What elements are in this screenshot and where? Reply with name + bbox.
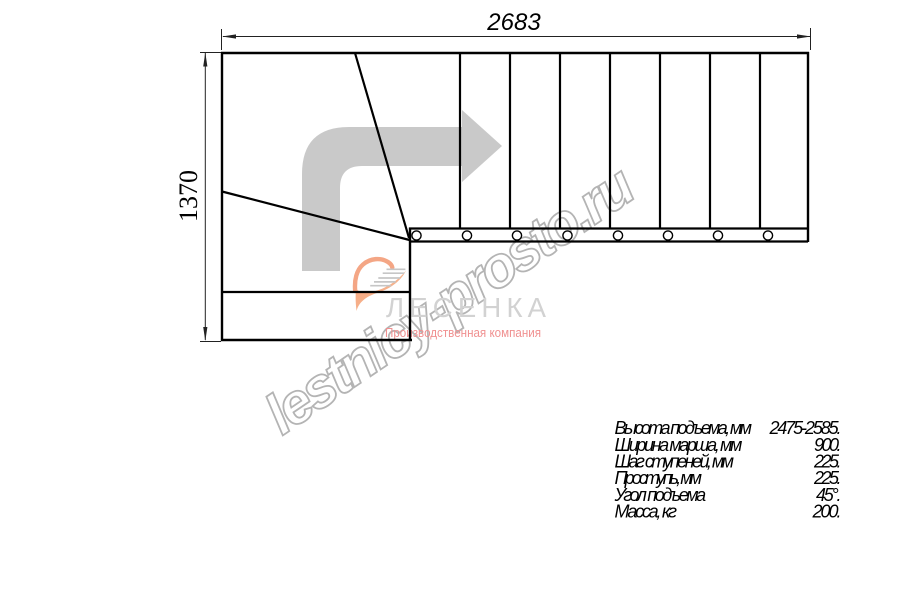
svg-text:2683: 2683 [486, 9, 541, 36]
svg-text:Производственная компания: Производственная компания [385, 326, 541, 340]
svg-text:Масса, кг: Масса, кг [615, 502, 678, 522]
svg-text:200.: 200. [812, 502, 842, 522]
svg-text:1370: 1370 [174, 170, 203, 222]
